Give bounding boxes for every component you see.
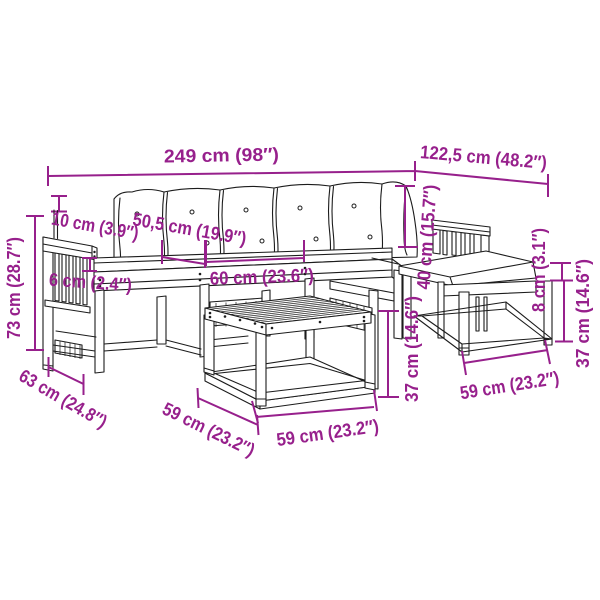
svg-text:249 cm (98″): 249 cm (98″): [164, 143, 279, 166]
svg-text:8 cm (3.1″): 8 cm (3.1″): [528, 228, 549, 312]
svg-text:60 cm (23.6″): 60 cm (23.6″): [209, 264, 314, 289]
svg-text:37 cm (14.6″): 37 cm (14.6″): [572, 259, 593, 368]
svg-text:37 cm (14.6″): 37 cm (14.6″): [401, 296, 422, 402]
svg-text:73 cm (28.7″): 73 cm (28.7″): [3, 237, 24, 339]
